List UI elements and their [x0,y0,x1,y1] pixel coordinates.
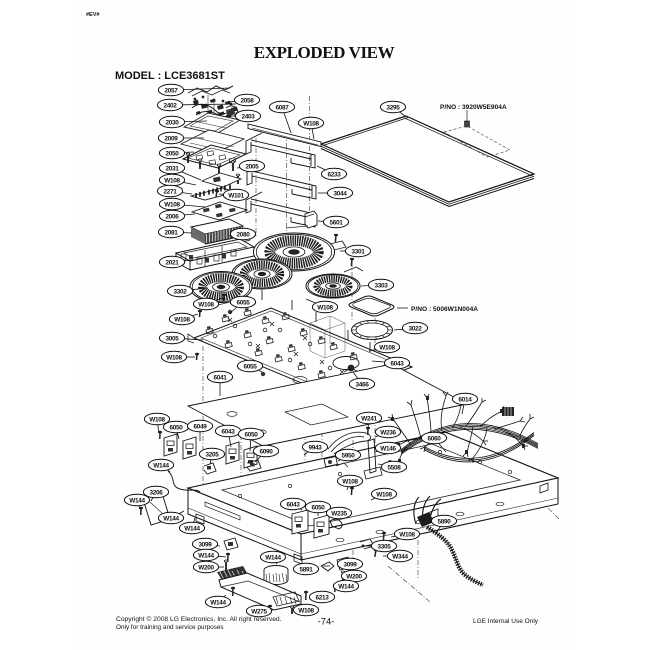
svg-text:3205: 3205 [205,451,219,458]
svg-text:3305: 3305 [377,543,391,550]
svg-text:5601: 5601 [329,219,343,226]
svg-text:6014: 6014 [458,396,472,403]
svg-text:LGE Internal Use Only: LGE Internal Use Only [473,618,539,625]
svg-text:5890: 5890 [437,518,451,525]
svg-text:W108: W108 [303,120,319,127]
svg-text:5950: 5950 [341,452,355,459]
svg-text:5891: 5891 [299,566,313,573]
svg-text:2009: 2009 [164,135,178,142]
svg-text:W200: W200 [346,573,362,580]
svg-text:MODEL : LCE3681ST: MODEL : LCE3681ST [115,70,225,82]
svg-text:6043: 6043 [221,428,235,435]
svg-text:2403: 2403 [241,113,255,120]
svg-text:W108: W108 [174,316,190,323]
svg-text:W241: W241 [361,415,377,422]
svg-text:W146: W146 [380,445,396,452]
svg-text:EXPLODED VIEW: EXPLODED VIEW [254,43,395,62]
svg-text:2271: 2271 [163,188,177,195]
svg-text:2057: 2057 [164,87,178,94]
svg-text:6090: 6090 [259,448,273,455]
svg-text:2081: 2081 [164,229,178,236]
svg-text:W235: W235 [331,510,347,517]
svg-text:5508: 5508 [387,464,401,471]
svg-text:2006: 2006 [165,213,179,220]
svg-text:6050: 6050 [311,504,325,511]
svg-text:W101: W101 [228,192,244,199]
svg-text:W108: W108 [166,354,182,361]
svg-text:W108: W108 [399,531,415,538]
svg-text:6055: 6055 [243,363,257,370]
svg-text:9943: 9943 [308,444,322,451]
svg-text:3022: 3022 [408,325,422,332]
svg-text:3466: 3466 [355,381,369,388]
svg-text:2030: 2030 [165,119,179,126]
svg-text:6049: 6049 [193,423,207,430]
svg-text:6043: 6043 [286,501,300,508]
svg-text:W144: W144 [210,599,226,606]
svg-text:6043: 6043 [390,360,404,367]
svg-text:W144: W144 [265,554,281,561]
svg-text:3099: 3099 [343,561,357,568]
svg-text:Only for training and service: Only for training and service purposes [116,624,224,631]
svg-text:-74-: -74- [318,617,335,628]
svg-text:W144: W144 [129,497,145,504]
svg-text:W144: W144 [184,525,200,532]
svg-text:3302: 3302 [173,288,187,295]
svg-text:W144: W144 [198,552,214,559]
svg-text:W144: W144 [163,515,179,522]
svg-text:W144: W144 [338,583,354,590]
svg-text:W108: W108 [164,201,180,208]
svg-text:W108: W108 [376,491,392,498]
svg-text:W108: W108 [317,304,333,311]
svg-text:W108: W108 [379,344,395,351]
svg-text:P/NO : 5006W1N004A: P/NO : 5006W1N004A [411,306,478,313]
svg-text:W108: W108 [342,478,358,485]
svg-text:W200: W200 [198,564,214,571]
svg-text:6050: 6050 [169,424,183,431]
svg-text:2058: 2058 [240,97,254,104]
svg-text:3005: 3005 [165,335,179,342]
svg-text:2021: 2021 [165,259,179,266]
svg-text:6060: 6060 [427,435,441,442]
svg-text:2005: 2005 [245,163,259,170]
svg-text:6041: 6041 [213,374,227,381]
svg-text:3301: 3301 [351,248,365,255]
svg-text:W236: W236 [380,429,396,436]
svg-text:3099: 3099 [198,541,212,548]
svg-text:W108: W108 [164,177,180,184]
svg-text:W344: W344 [392,553,408,560]
svg-text:6087: 6087 [275,104,289,111]
svg-text:2402: 2402 [163,102,177,109]
svg-text:3295: 3295 [386,104,400,111]
svg-text:2080: 2080 [236,231,250,238]
svg-text:W108: W108 [298,607,314,614]
svg-text:6055: 6055 [236,299,250,306]
svg-text:P/NO : 3920W5E904A: P/NO : 3920W5E904A [440,104,507,111]
svg-text:W275: W275 [251,608,267,615]
svg-text:3303: 3303 [374,282,388,289]
svg-text:W108: W108 [149,416,165,423]
svg-text:2050: 2050 [165,150,179,157]
svg-text:#EV#: #EV# [86,12,99,18]
svg-text:6213: 6213 [315,594,329,601]
svg-text:3044: 3044 [333,190,347,197]
svg-text:6050: 6050 [244,431,258,438]
svg-text:3206: 3206 [149,489,163,496]
svg-text:W144: W144 [153,462,169,469]
svg-text:6233: 6233 [327,171,341,178]
svg-text:W108: W108 [198,301,214,308]
svg-text:2031: 2031 [165,165,179,172]
